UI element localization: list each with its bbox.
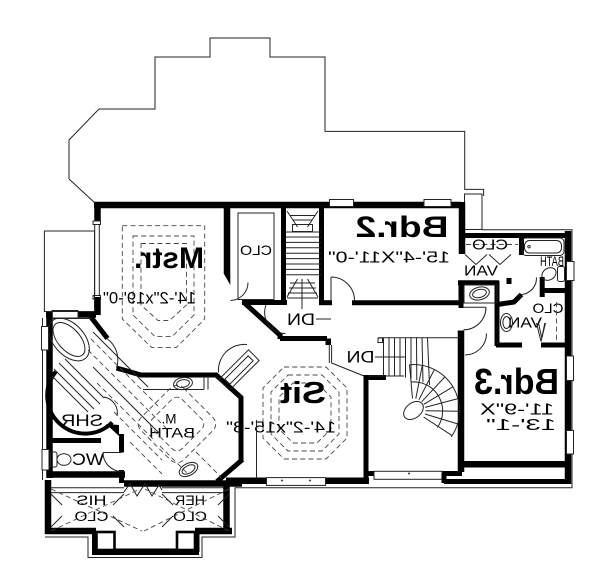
- svg-text:CLO: CLO: [75, 509, 109, 524]
- svg-text:Bdr.2: Bdr.2: [356, 211, 449, 244]
- svg-text:13'-1": 13'-1": [486, 417, 556, 434]
- svg-text:WC: WC: [72, 450, 104, 469]
- svg-text:HIS: HIS: [77, 493, 107, 508]
- svg-text:HER: HER: [175, 493, 205, 508]
- svg-text:M.: M.: [162, 412, 177, 427]
- svg-text:11'-9"X: 11'-9"X: [480, 402, 554, 419]
- svg-text:14'-2"x19'-0": 14'-2"x19'-0": [103, 289, 196, 308]
- svg-text:Bdr.3: Bdr.3: [474, 361, 559, 402]
- svg-text:DN: DN: [287, 310, 315, 329]
- svg-text:Mstr.: Mstr.: [134, 242, 204, 275]
- svg-text:15'-4"X11'-0": 15'-4"X11'-0": [328, 250, 450, 267]
- svg-text:14'-2"x15'-8": 14'-2"x15'-8": [226, 420, 336, 437]
- svg-text:SHR: SHR: [61, 411, 103, 430]
- svg-text:VAN: VAN: [464, 263, 498, 280]
- svg-text:DN: DN: [347, 348, 375, 367]
- svg-text:CLO: CLO: [240, 242, 272, 258]
- svg-text:Sit: Sit: [280, 375, 326, 410]
- svg-text:CLO: CLO: [472, 237, 508, 254]
